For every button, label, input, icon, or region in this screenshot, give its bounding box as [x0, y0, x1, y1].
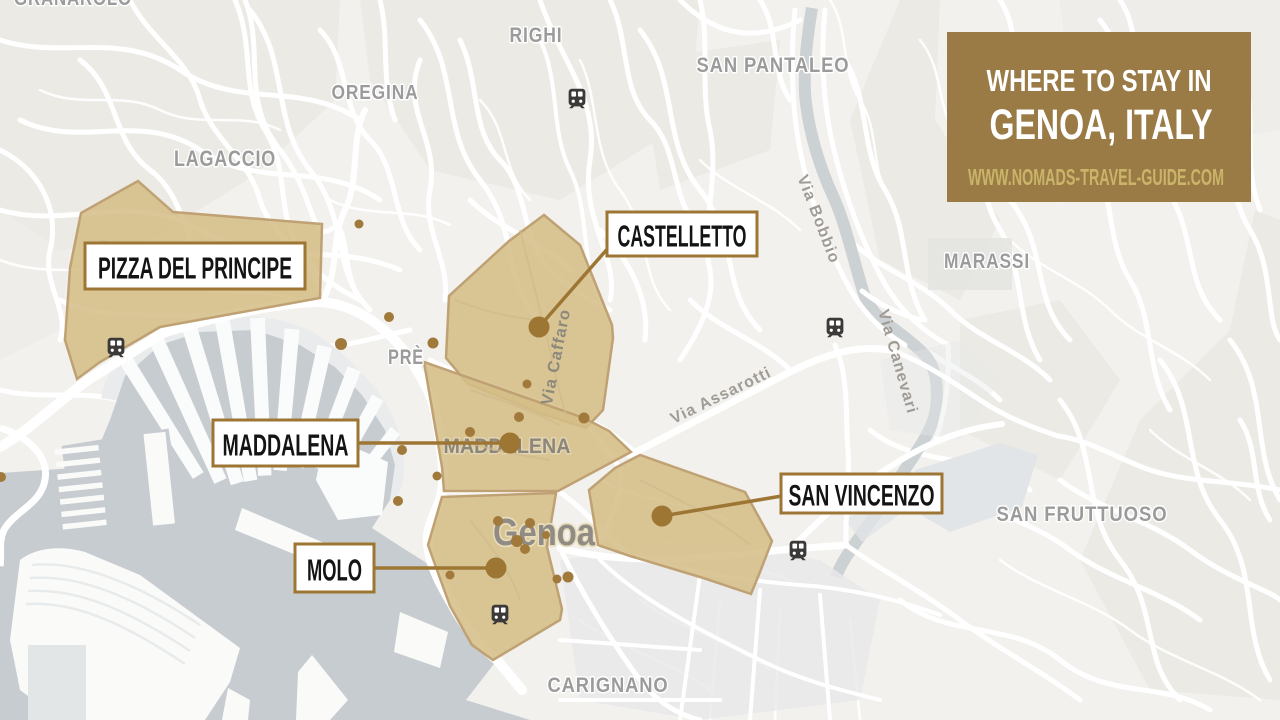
svg-text:GENOA, ITALY: GENOA, ITALY [990, 101, 1213, 149]
svg-text:CARIGNANO: CARIGNANO [548, 674, 669, 697]
svg-text:SAN VINCENZO: SAN VINCENZO [789, 479, 935, 512]
svg-text:SAN PANTALEO: SAN PANTALEO [697, 54, 850, 77]
svg-text:MARASSI: MARASSI [944, 250, 1030, 273]
svg-text:OREGINA: OREGINA [332, 82, 419, 104]
svg-text:CASTELLETTO: CASTELLETTO [618, 218, 747, 253]
svg-text:WHERE TO STAY IN: WHERE TO STAY IN [987, 63, 1212, 98]
svg-text:PRÈ: PRÈ [388, 346, 424, 369]
svg-text:RIGHI: RIGHI [510, 24, 563, 47]
svg-text:LAGACCIO: LAGACCIO [174, 146, 276, 171]
svg-text:MOLO: MOLO [307, 552, 362, 587]
svg-text:WWW.NOMADS-TRAVEL-GUIDE.COM: WWW.NOMADS-TRAVEL-GUIDE.COM [968, 164, 1224, 190]
svg-text:GRANAROLO: GRANAROLO [14, 0, 132, 10]
svg-text:PIZZA DEL PRINCIPE: PIZZA DEL PRINCIPE [98, 250, 292, 285]
svg-text:SAN FRUTTUOSO: SAN FRUTTUOSO [997, 503, 1168, 526]
svg-text:MADDALENA: MADDALENA [223, 427, 349, 462]
